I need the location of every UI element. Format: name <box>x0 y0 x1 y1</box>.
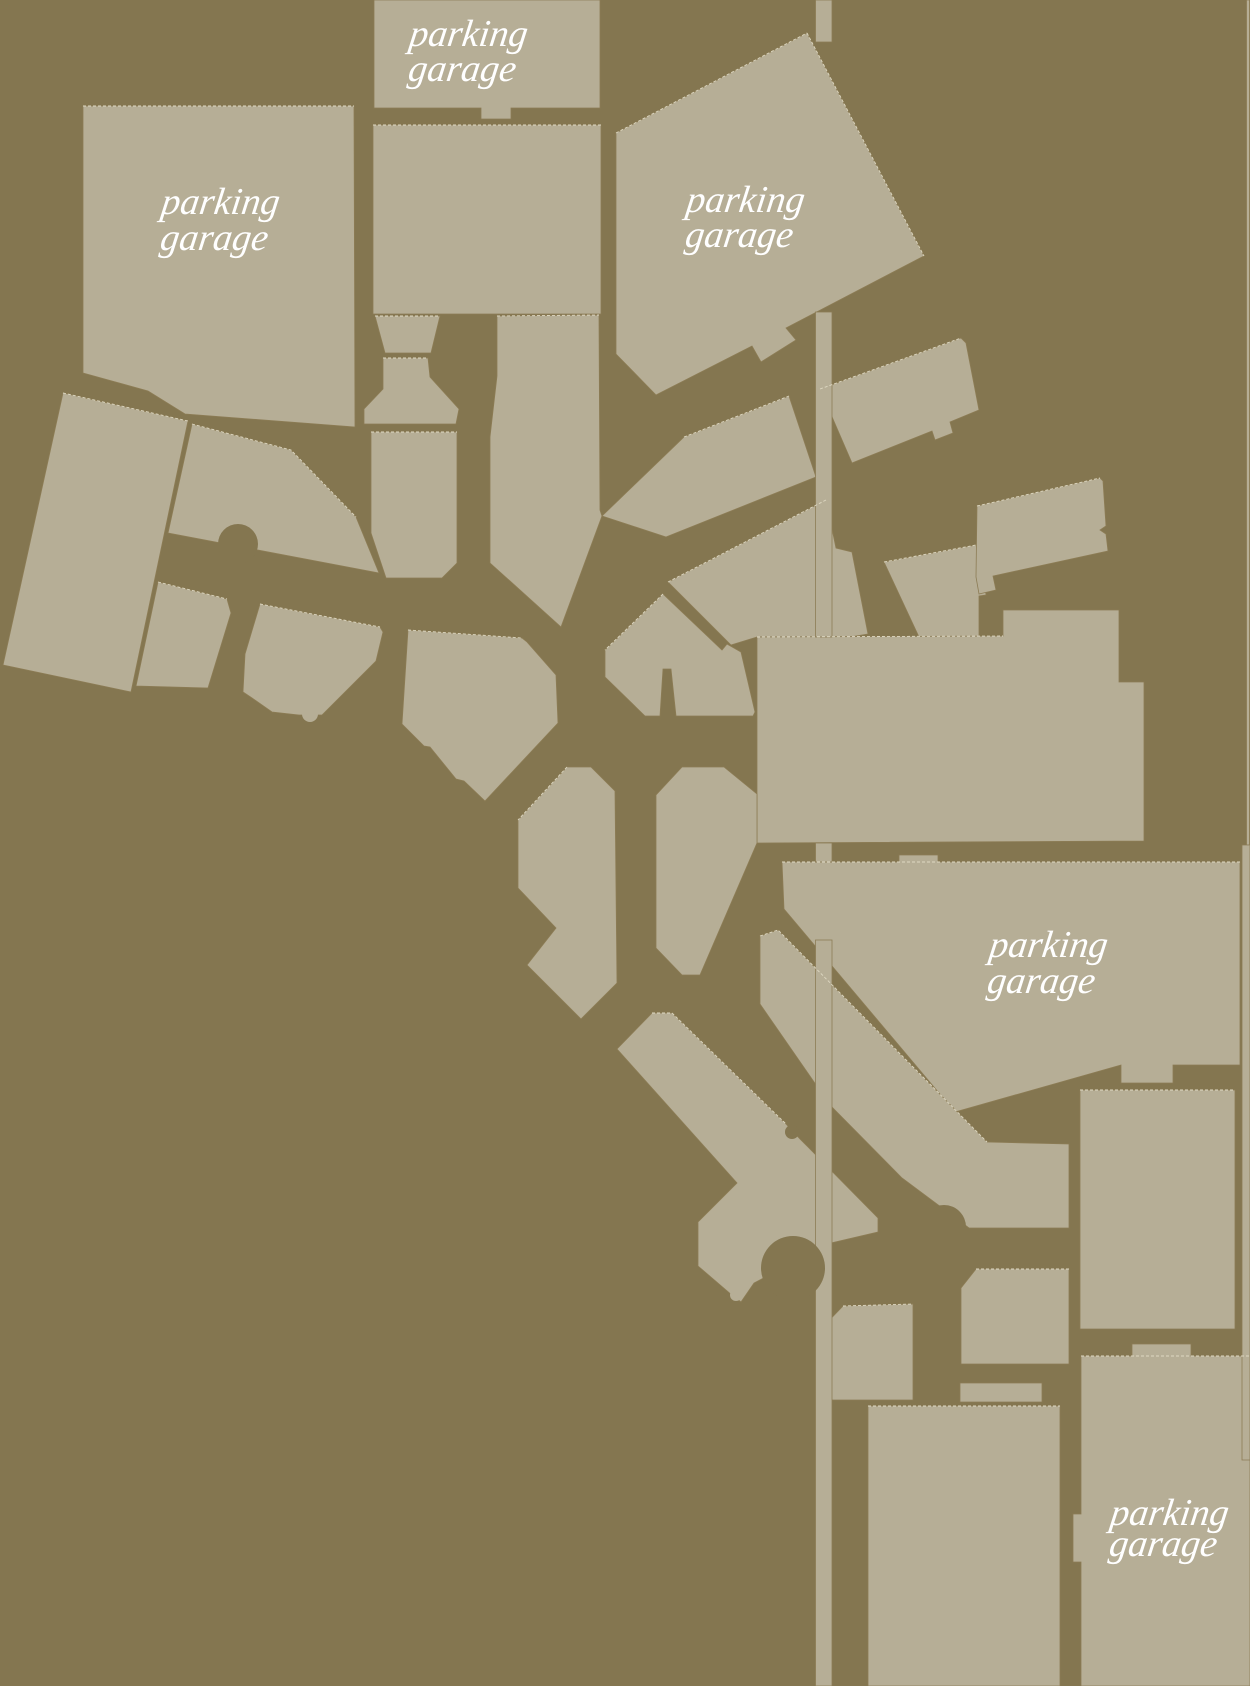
svg-text:garage: garage <box>406 48 520 90</box>
svg-text:garage: garage <box>683 214 797 256</box>
svg-text:garage: garage <box>1107 1523 1221 1565</box>
svg-text:garage: garage <box>158 217 272 259</box>
svg-text:garage: garage <box>985 960 1099 1002</box>
